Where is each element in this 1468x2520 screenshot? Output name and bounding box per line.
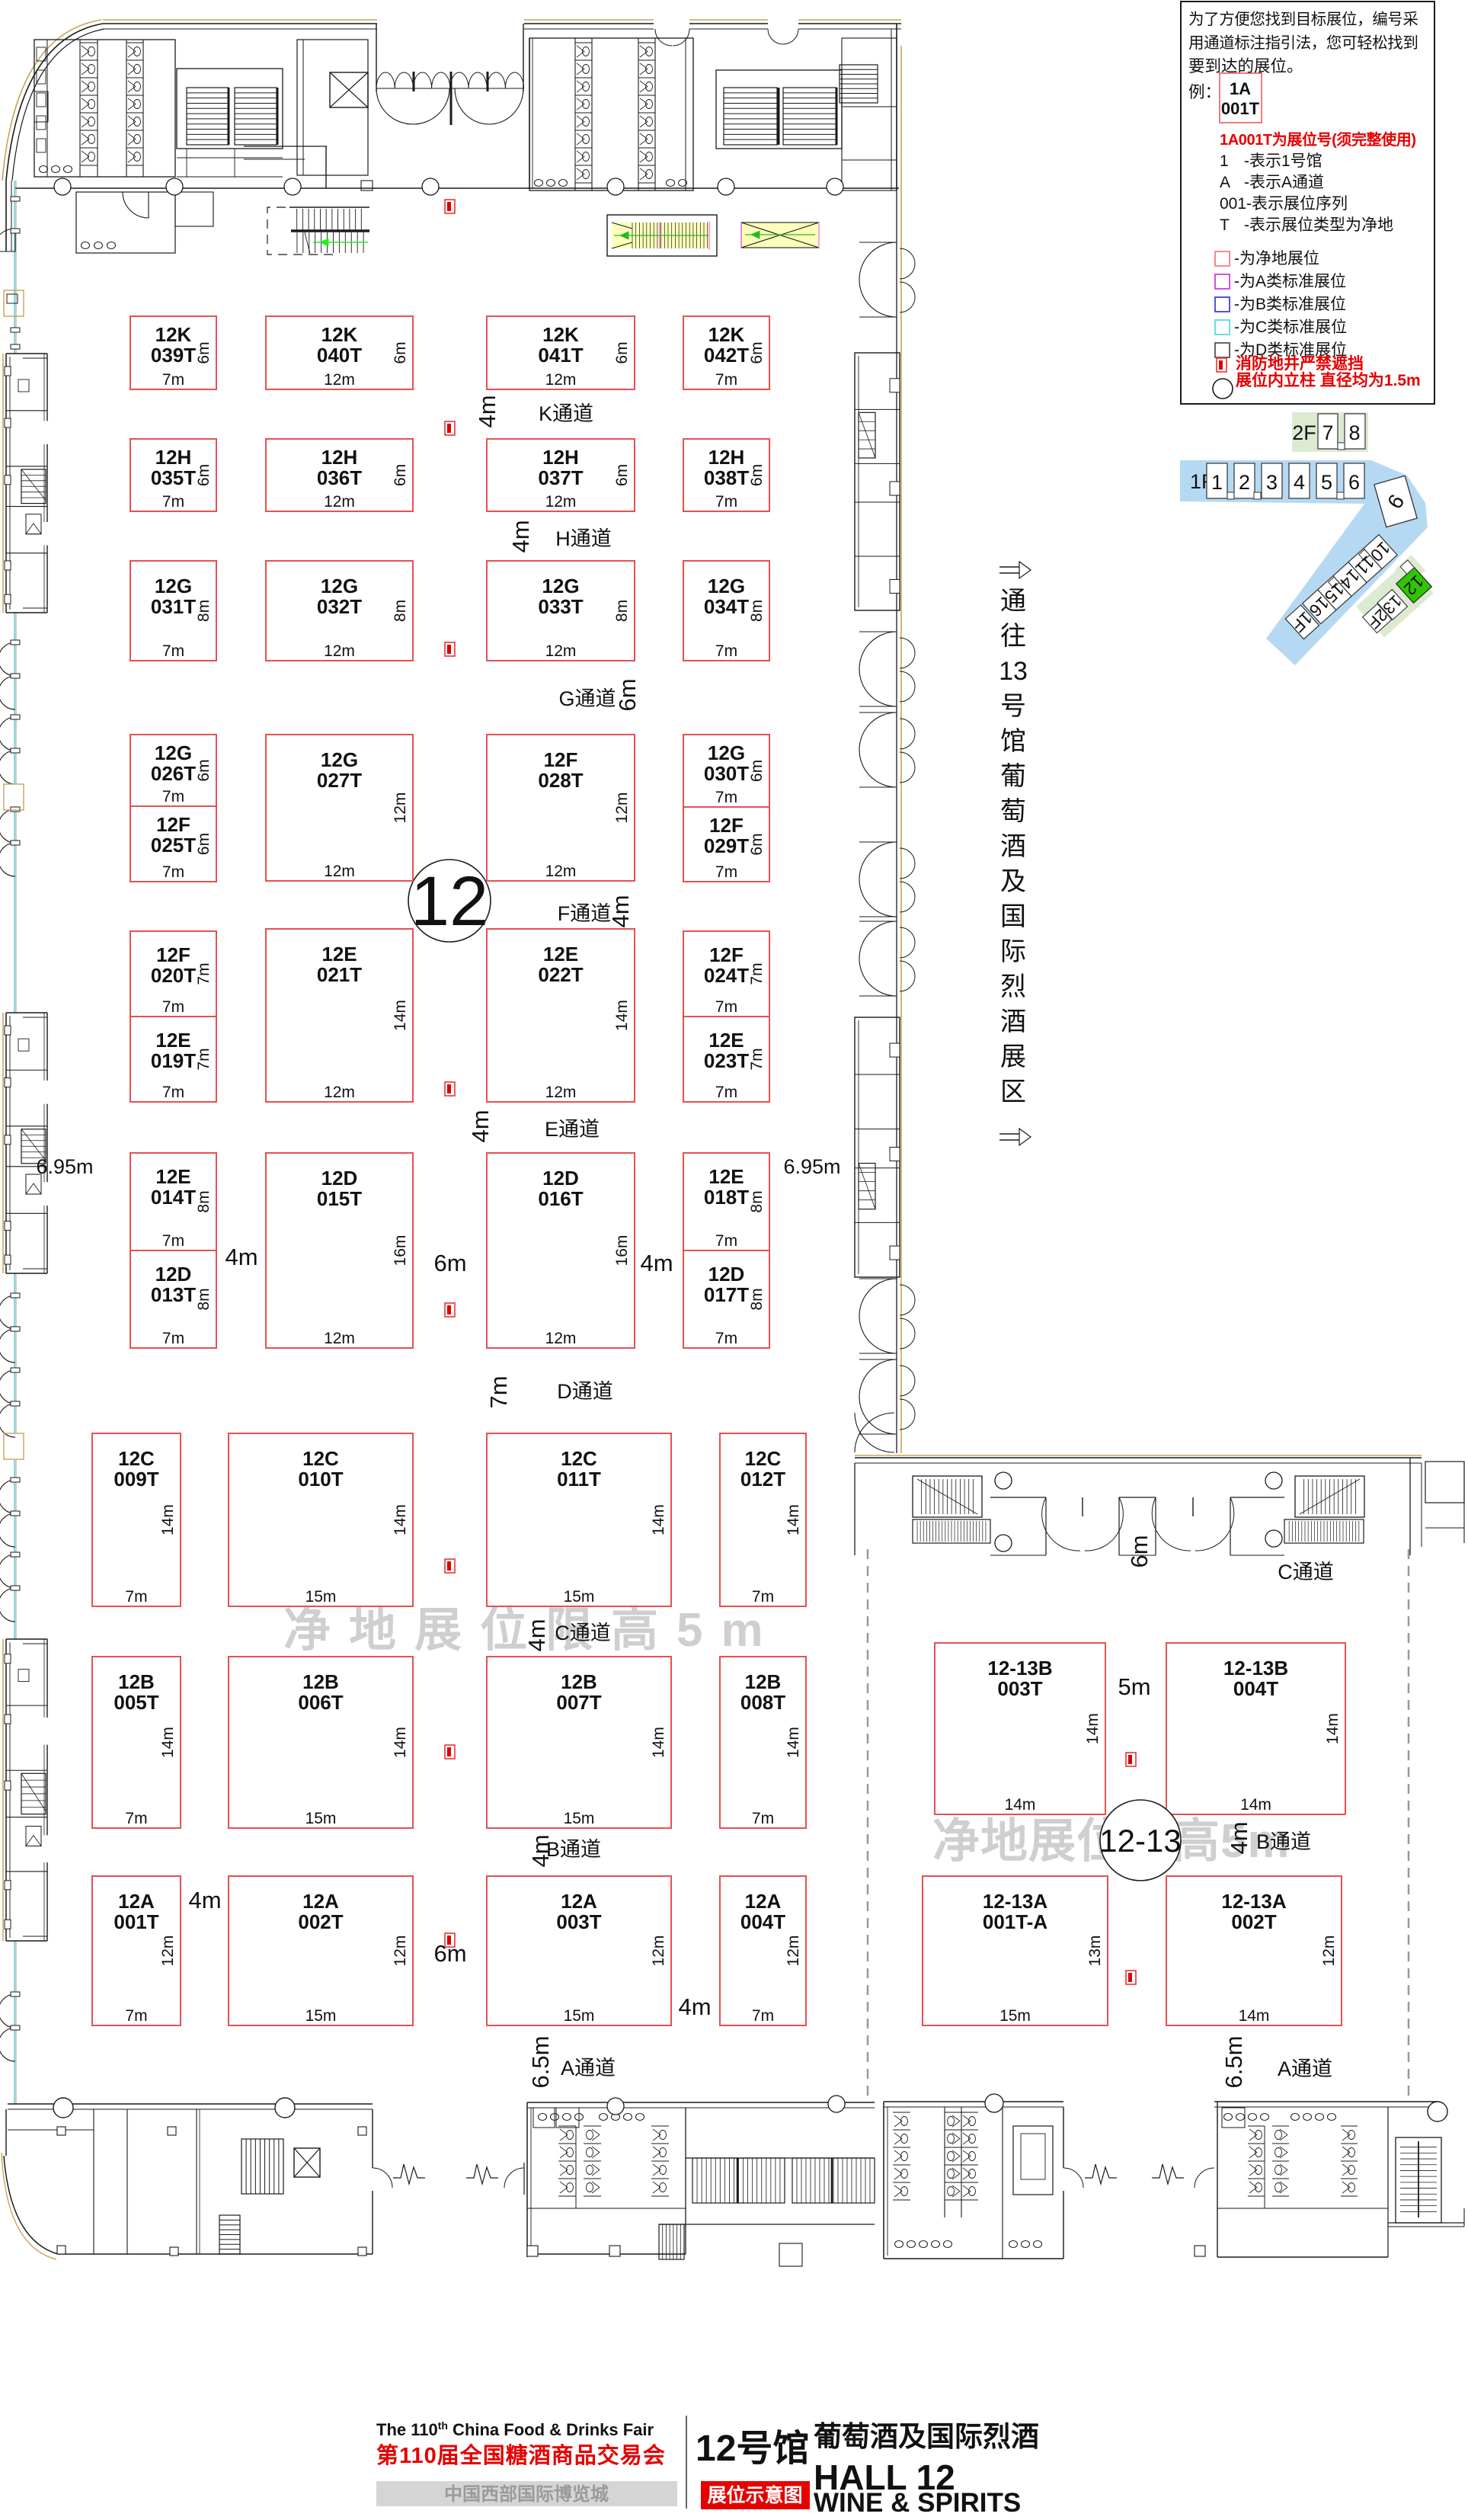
svg-text:消防地井严禁遮挡: 消防地井严禁遮挡 — [1236, 354, 1364, 373]
svg-text:12A: 12A — [561, 1890, 597, 1913]
svg-text:6m: 6m — [614, 678, 641, 711]
svg-text:14m: 14m — [392, 1504, 409, 1535]
svg-text:12m: 12m — [392, 793, 409, 824]
svg-text:12m: 12m — [650, 1936, 667, 1967]
svg-text:041T: 041T — [538, 344, 583, 367]
svg-text:7m: 7m — [125, 2007, 147, 2025]
svg-text:12F: 12F — [156, 943, 190, 966]
svg-text:12B: 12B — [118, 1670, 155, 1693]
svg-text:7m: 7m — [162, 371, 184, 389]
svg-text:12G: 12G — [321, 575, 358, 597]
svg-text:034T: 034T — [704, 595, 749, 618]
svg-text:4m: 4m — [474, 395, 501, 427]
svg-text:展: 展 — [1000, 1042, 1026, 1071]
svg-text:028T: 028T — [538, 769, 583, 792]
svg-text:12m: 12m — [613, 793, 631, 824]
svg-text:E通道: E通道 — [545, 1118, 600, 1141]
svg-text:区: 区 — [1000, 1077, 1026, 1106]
svg-text:002T: 002T — [1231, 1910, 1276, 1933]
svg-text:12E: 12E — [155, 1165, 190, 1188]
svg-text:T: T — [1220, 216, 1230, 234]
svg-text:12号馆: 12号馆 — [696, 2429, 809, 2469]
svg-text:12m: 12m — [545, 863, 577, 880]
svg-text:6.5m: 6.5m — [527, 2036, 554, 2089]
svg-text:15m: 15m — [305, 2007, 337, 2025]
svg-text:7m: 7m — [715, 371, 737, 389]
svg-text:6m: 6m — [195, 341, 213, 363]
svg-text:6m: 6m — [1126, 1535, 1153, 1567]
svg-text:12G: 12G — [155, 741, 192, 764]
svg-text:-为净地展位: -为净地展位 — [1234, 250, 1319, 267]
svg-text:14m: 14m — [1005, 1796, 1036, 1814]
svg-text:葡萄酒及国际烈酒: 葡萄酒及国际烈酒 — [814, 2421, 1039, 2452]
svg-text:7m: 7m — [752, 1810, 774, 1827]
svg-text:15m: 15m — [305, 1810, 337, 1827]
svg-text:013T: 013T — [151, 1283, 196, 1306]
svg-text:-表示1号馆: -表示1号馆 — [1244, 152, 1322, 170]
svg-text:005T: 005T — [114, 1691, 158, 1714]
svg-text:001T: 001T — [114, 1910, 158, 1933]
svg-text:7m: 7m — [162, 1232, 184, 1250]
svg-text:展位示意图: 展位示意图 — [707, 2484, 802, 2506]
svg-text:12-13B: 12-13B — [1223, 1657, 1288, 1679]
svg-text:6m: 6m — [195, 759, 213, 781]
svg-text:国: 国 — [1000, 902, 1026, 931]
svg-text:7: 7 — [1322, 421, 1333, 444]
svg-text:4m: 4m — [1226, 1821, 1252, 1854]
svg-text:K通道: K通道 — [539, 402, 593, 425]
svg-text:12F: 12F — [544, 748, 578, 771]
svg-text:烈: 烈 — [1000, 972, 1026, 1001]
svg-text:12C: 12C — [561, 1447, 597, 1470]
svg-text:C通道: C通道 — [555, 1622, 611, 1644]
svg-text:14m: 14m — [392, 1000, 409, 1031]
svg-text:12F: 12F — [709, 943, 744, 966]
svg-text:7m: 7m — [162, 1084, 184, 1101]
svg-text:往: 往 — [1000, 622, 1026, 651]
svg-text:7m: 7m — [162, 998, 184, 1016]
svg-text:12: 12 — [411, 863, 488, 940]
svg-text:4m: 4m — [467, 1110, 494, 1142]
svg-text:中国西部国际博览城: 中国西部国际博览城 — [444, 2483, 609, 2505]
svg-text:8m: 8m — [748, 600, 766, 622]
svg-text:039T: 039T — [151, 344, 196, 367]
svg-text:016T: 016T — [538, 1187, 583, 1210]
svg-text:12-13A: 12-13A — [1221, 1890, 1286, 1913]
svg-text:7m: 7m — [748, 1048, 766, 1070]
svg-text:A通道: A通道 — [1278, 2057, 1332, 2080]
svg-text:12m: 12m — [392, 1936, 409, 1967]
svg-text:4m: 4m — [640, 1250, 673, 1276]
svg-text:009T: 009T — [114, 1468, 158, 1491]
svg-text:12K: 12K — [708, 323, 745, 346]
svg-text:12D: 12D — [155, 1263, 192, 1286]
svg-text:酒: 酒 — [1000, 1007, 1026, 1036]
svg-text:15m: 15m — [305, 1588, 337, 1606]
svg-text:6m: 6m — [195, 833, 213, 855]
svg-text:8m: 8m — [195, 1288, 213, 1310]
svg-text:及: 及 — [1000, 867, 1026, 896]
svg-text:7m: 7m — [162, 788, 184, 805]
svg-text:022T: 022T — [538, 963, 583, 986]
svg-text:15m: 15m — [564, 1810, 595, 1827]
svg-text:036T: 036T — [317, 466, 362, 489]
svg-text:6.95m: 6.95m — [36, 1155, 93, 1178]
svg-text:12D: 12D — [321, 1167, 358, 1190]
svg-text:6m: 6m — [748, 833, 766, 855]
svg-text:018T: 018T — [704, 1186, 749, 1209]
svg-text:12m: 12m — [545, 1084, 577, 1101]
svg-text:8: 8 — [1348, 421, 1360, 444]
svg-text:010T: 010T — [298, 1468, 343, 1491]
svg-text:040T: 040T — [317, 344, 362, 367]
svg-text:7m: 7m — [715, 493, 737, 511]
svg-text:12B: 12B — [561, 1670, 597, 1693]
svg-text:003T: 003T — [997, 1677, 1042, 1700]
svg-text:4: 4 — [1294, 471, 1305, 494]
svg-text:12H: 12H — [542, 446, 579, 469]
svg-text:12E: 12E — [708, 1165, 744, 1188]
svg-text:8m: 8m — [748, 1288, 766, 1310]
svg-text:16m: 16m — [613, 1235, 631, 1266]
svg-text:7m: 7m — [715, 642, 737, 660]
svg-text:萄: 萄 — [1000, 797, 1026, 826]
svg-text:6m: 6m — [392, 464, 409, 486]
svg-text:12A: 12A — [302, 1890, 339, 1913]
svg-text:026T: 026T — [151, 762, 196, 785]
svg-text:14m: 14m — [1239, 2007, 1270, 2025]
svg-text:14m: 14m — [159, 1504, 177, 1535]
svg-text:6: 6 — [1348, 471, 1360, 494]
svg-text:B通道: B通道 — [1256, 1830, 1311, 1853]
svg-text:15m: 15m — [999, 2007, 1031, 2025]
svg-text:-表示A通道: -表示A通道 — [1244, 174, 1324, 191]
svg-text:12E: 12E — [155, 1029, 190, 1052]
svg-text:12G: 12G — [321, 748, 358, 771]
svg-text:7m: 7m — [715, 1330, 737, 1347]
svg-text:际: 际 — [1000, 937, 1026, 966]
svg-text:4m: 4m — [188, 1887, 221, 1913]
svg-text:003T: 003T — [556, 1910, 601, 1933]
svg-text:031T: 031T — [151, 595, 196, 618]
svg-text:004T: 004T — [740, 1910, 785, 1933]
svg-text:12F: 12F — [156, 813, 190, 836]
svg-text:葡: 葡 — [1000, 762, 1026, 791]
svg-text:通: 通 — [1000, 587, 1026, 616]
svg-text:020T: 020T — [151, 964, 196, 987]
svg-text:12m: 12m — [545, 493, 577, 511]
svg-text:6.5m: 6.5m — [1220, 2036, 1247, 2089]
svg-text:12m: 12m — [324, 1330, 355, 1347]
svg-text:6m: 6m — [613, 341, 631, 363]
svg-text:5: 5 — [1321, 471, 1332, 494]
svg-text:12K: 12K — [542, 323, 579, 346]
svg-text:025T: 025T — [151, 834, 196, 857]
svg-text:8m: 8m — [195, 1190, 213, 1212]
svg-text:2: 2 — [1239, 471, 1250, 494]
svg-text:12G: 12G — [708, 741, 745, 764]
svg-text:6m: 6m — [748, 341, 766, 363]
svg-text:12m: 12m — [545, 642, 577, 660]
svg-text:12C: 12C — [302, 1447, 339, 1470]
svg-text:12B: 12B — [745, 1670, 782, 1693]
svg-text:12E: 12E — [543, 943, 578, 965]
svg-text:029T: 029T — [704, 834, 749, 857]
svg-text:4m: 4m — [225, 1244, 257, 1270]
svg-text:12m: 12m — [324, 863, 355, 880]
svg-text:14m: 14m — [1084, 1713, 1102, 1744]
svg-text:14m: 14m — [392, 1727, 409, 1758]
svg-text:A: A — [1220, 174, 1230, 191]
svg-text:12-13B: 12-13B — [987, 1657, 1052, 1679]
svg-text:7m: 7m — [125, 1588, 147, 1606]
svg-text:7m: 7m — [715, 1232, 737, 1250]
svg-text:14m: 14m — [785, 1727, 802, 1758]
svg-text:14m: 14m — [159, 1727, 177, 1758]
svg-text:042T: 042T — [704, 344, 749, 367]
svg-text:007T: 007T — [556, 1691, 601, 1714]
svg-text:B通道: B通道 — [546, 1838, 601, 1861]
svg-text:7m: 7m — [162, 493, 184, 511]
svg-text:12m: 12m — [159, 1936, 177, 1967]
svg-text:7m: 7m — [748, 962, 766, 985]
svg-text:12K: 12K — [155, 323, 192, 346]
svg-text:4m: 4m — [607, 895, 634, 927]
svg-text:035T: 035T — [151, 466, 196, 489]
svg-text:12D: 12D — [708, 1263, 745, 1286]
svg-text:8m: 8m — [748, 1190, 766, 1212]
svg-text:017T: 017T — [704, 1283, 749, 1306]
svg-text:8m: 8m — [392, 600, 409, 622]
svg-text:12H: 12H — [321, 446, 358, 469]
svg-text:7m: 7m — [162, 863, 184, 881]
svg-text:023T: 023T — [704, 1049, 749, 1072]
svg-text:7m: 7m — [162, 1330, 184, 1347]
svg-text:12-13: 12-13 — [1099, 1823, 1181, 1859]
svg-text:7m: 7m — [195, 1048, 213, 1070]
svg-text:8m: 8m — [195, 600, 213, 622]
svg-text:酒: 酒 — [1000, 832, 1026, 861]
svg-text:13m: 13m — [1086, 1936, 1104, 1967]
svg-text:006T: 006T — [298, 1691, 343, 1714]
svg-text:12G: 12G — [542, 575, 579, 597]
svg-text:G通道: G通道 — [558, 687, 616, 710]
svg-text:2F: 2F — [1292, 421, 1316, 444]
svg-text:12m: 12m — [545, 371, 577, 389]
svg-text:004T: 004T — [1233, 1677, 1278, 1700]
svg-text:12G: 12G — [708, 575, 745, 597]
svg-text:12m: 12m — [324, 642, 355, 660]
svg-text:5m: 5m — [1118, 1673, 1150, 1700]
svg-text:027T: 027T — [317, 769, 362, 792]
svg-text:展位内立柱 直径均为1.5m: 展位内立柱 直径均为1.5m — [1236, 371, 1421, 389]
svg-text:用通道标注指引法，您可轻松找到: 用通道标注指引法，您可轻松找到 — [1188, 34, 1418, 52]
svg-text:12m: 12m — [324, 371, 355, 389]
svg-text:6m: 6m — [613, 464, 631, 486]
svg-text:015T: 015T — [317, 1187, 362, 1210]
svg-text:002T: 002T — [298, 1910, 343, 1933]
svg-text:8m: 8m — [613, 600, 631, 622]
svg-text:7m: 7m — [715, 998, 737, 1016]
svg-text:C通道: C通道 — [1278, 1561, 1334, 1583]
svg-text:1: 1 — [1220, 152, 1229, 170]
svg-text:12m: 12m — [1320, 1936, 1338, 1967]
svg-text:12F: 12F — [709, 814, 744, 837]
svg-text:6m: 6m — [748, 464, 766, 486]
svg-text:001-表示展位序列: 001-表示展位序列 — [1220, 195, 1348, 213]
svg-text:7m: 7m — [715, 1084, 737, 1101]
svg-text:14m: 14m — [785, 1504, 802, 1535]
svg-text:12C: 12C — [745, 1447, 782, 1470]
svg-text:F通道: F通道 — [558, 902, 612, 925]
svg-text:15m: 15m — [564, 1588, 595, 1606]
svg-text:12G: 12G — [155, 575, 192, 597]
svg-text:6.95m: 6.95m — [783, 1155, 840, 1178]
svg-text:1A: 1A — [1230, 79, 1251, 98]
svg-text:例：: 例： — [1188, 83, 1221, 101]
svg-text:号: 号 — [1000, 692, 1026, 721]
svg-text:001T: 001T — [1221, 99, 1260, 118]
svg-text:1: 1 — [1211, 471, 1223, 494]
svg-text:WINE & SPIRITS: WINE & SPIRITS — [814, 2488, 1021, 2518]
svg-text:14m: 14m — [1324, 1713, 1342, 1744]
svg-text:第110届全国糖酒商品交易会: 第110届全国糖酒商品交易会 — [376, 2442, 666, 2468]
svg-text:15m: 15m — [564, 2007, 595, 2025]
svg-text:6m: 6m — [195, 464, 213, 486]
svg-text:033T: 033T — [538, 595, 583, 618]
svg-text:001T-A: 001T-A — [983, 1910, 1047, 1933]
svg-text:7m: 7m — [162, 642, 184, 660]
svg-text:14m: 14m — [650, 1727, 667, 1758]
svg-text:3: 3 — [1266, 471, 1278, 494]
svg-text:6m: 6m — [433, 1250, 466, 1276]
svg-text:1A001T为展位号(须完整使用): 1A001T为展位号(须完整使用) — [1220, 130, 1416, 149]
svg-text:7m: 7m — [125, 1810, 147, 1827]
svg-text:为了方便您找到目标展位，编号采: 为了方便您找到目标展位，编号采 — [1188, 11, 1418, 28]
svg-text:12A: 12A — [118, 1890, 155, 1913]
svg-text:14m: 14m — [613, 1000, 631, 1031]
svg-text:7m: 7m — [752, 1588, 774, 1606]
svg-text:-为C类标准展位: -为C类标准展位 — [1234, 319, 1347, 336]
svg-text:038T: 038T — [704, 466, 749, 489]
svg-text:-为B类标准展位: -为B类标准展位 — [1234, 296, 1346, 313]
svg-text:馆: 馆 — [1000, 727, 1026, 756]
svg-text:12m: 12m — [545, 1330, 577, 1347]
svg-text:011T: 011T — [557, 1468, 601, 1491]
svg-text:12K: 12K — [321, 323, 358, 346]
svg-text:14m: 14m — [1240, 1796, 1271, 1814]
svg-text:012T: 012T — [740, 1468, 785, 1491]
svg-text:13: 13 — [999, 657, 1028, 686]
svg-text:12D: 12D — [542, 1167, 579, 1190]
svg-text:7m: 7m — [715, 863, 737, 881]
svg-text:-为A类标准展位: -为A类标准展位 — [1234, 273, 1346, 290]
svg-text:The 110th China Food & Drinks: The 110th China Food & Drinks Fair — [376, 2419, 654, 2439]
svg-text:12E: 12E — [321, 943, 357, 965]
svg-text:021T: 021T — [317, 963, 362, 986]
svg-text:12H: 12H — [708, 446, 745, 469]
svg-text:12B: 12B — [302, 1670, 339, 1693]
svg-text:12A: 12A — [745, 1890, 782, 1913]
svg-text:12m: 12m — [324, 493, 355, 511]
svg-text:12H: 12H — [155, 446, 192, 469]
svg-text:12m: 12m — [324, 1084, 355, 1101]
svg-text:12C: 12C — [118, 1447, 155, 1470]
svg-text:7m: 7m — [752, 2007, 774, 2025]
svg-text:A通道: A通道 — [561, 2057, 616, 2080]
svg-text:7m: 7m — [715, 789, 737, 806]
svg-text:12m: 12m — [785, 1936, 802, 1967]
svg-text:6m: 6m — [748, 760, 766, 782]
svg-text:4m: 4m — [523, 1619, 550, 1651]
svg-text:16m: 16m — [392, 1235, 409, 1266]
svg-text:032T: 032T — [317, 595, 362, 618]
svg-text:019T: 019T — [151, 1049, 196, 1072]
svg-text:H通道: H通道 — [555, 527, 612, 550]
svg-text:037T: 037T — [538, 466, 583, 489]
svg-text:6m: 6m — [433, 1940, 466, 1967]
svg-text:12-13A: 12-13A — [983, 1890, 1047, 1913]
svg-text:7m: 7m — [485, 1375, 512, 1408]
svg-text:D通道: D通道 — [557, 1380, 613, 1403]
svg-text:4m: 4m — [507, 520, 534, 552]
svg-text:12E: 12E — [708, 1029, 744, 1052]
svg-text:024T: 024T — [704, 964, 749, 987]
svg-text:7m: 7m — [195, 962, 213, 985]
svg-text:6m: 6m — [392, 341, 409, 363]
svg-text:008T: 008T — [740, 1691, 785, 1714]
svg-text:-表示展位类型为净地: -表示展位类型为净地 — [1244, 216, 1393, 234]
svg-text:014T: 014T — [151, 1186, 196, 1209]
svg-text:14m: 14m — [650, 1504, 667, 1535]
svg-text:030T: 030T — [704, 762, 749, 785]
svg-text:4m: 4m — [678, 1993, 711, 2020]
